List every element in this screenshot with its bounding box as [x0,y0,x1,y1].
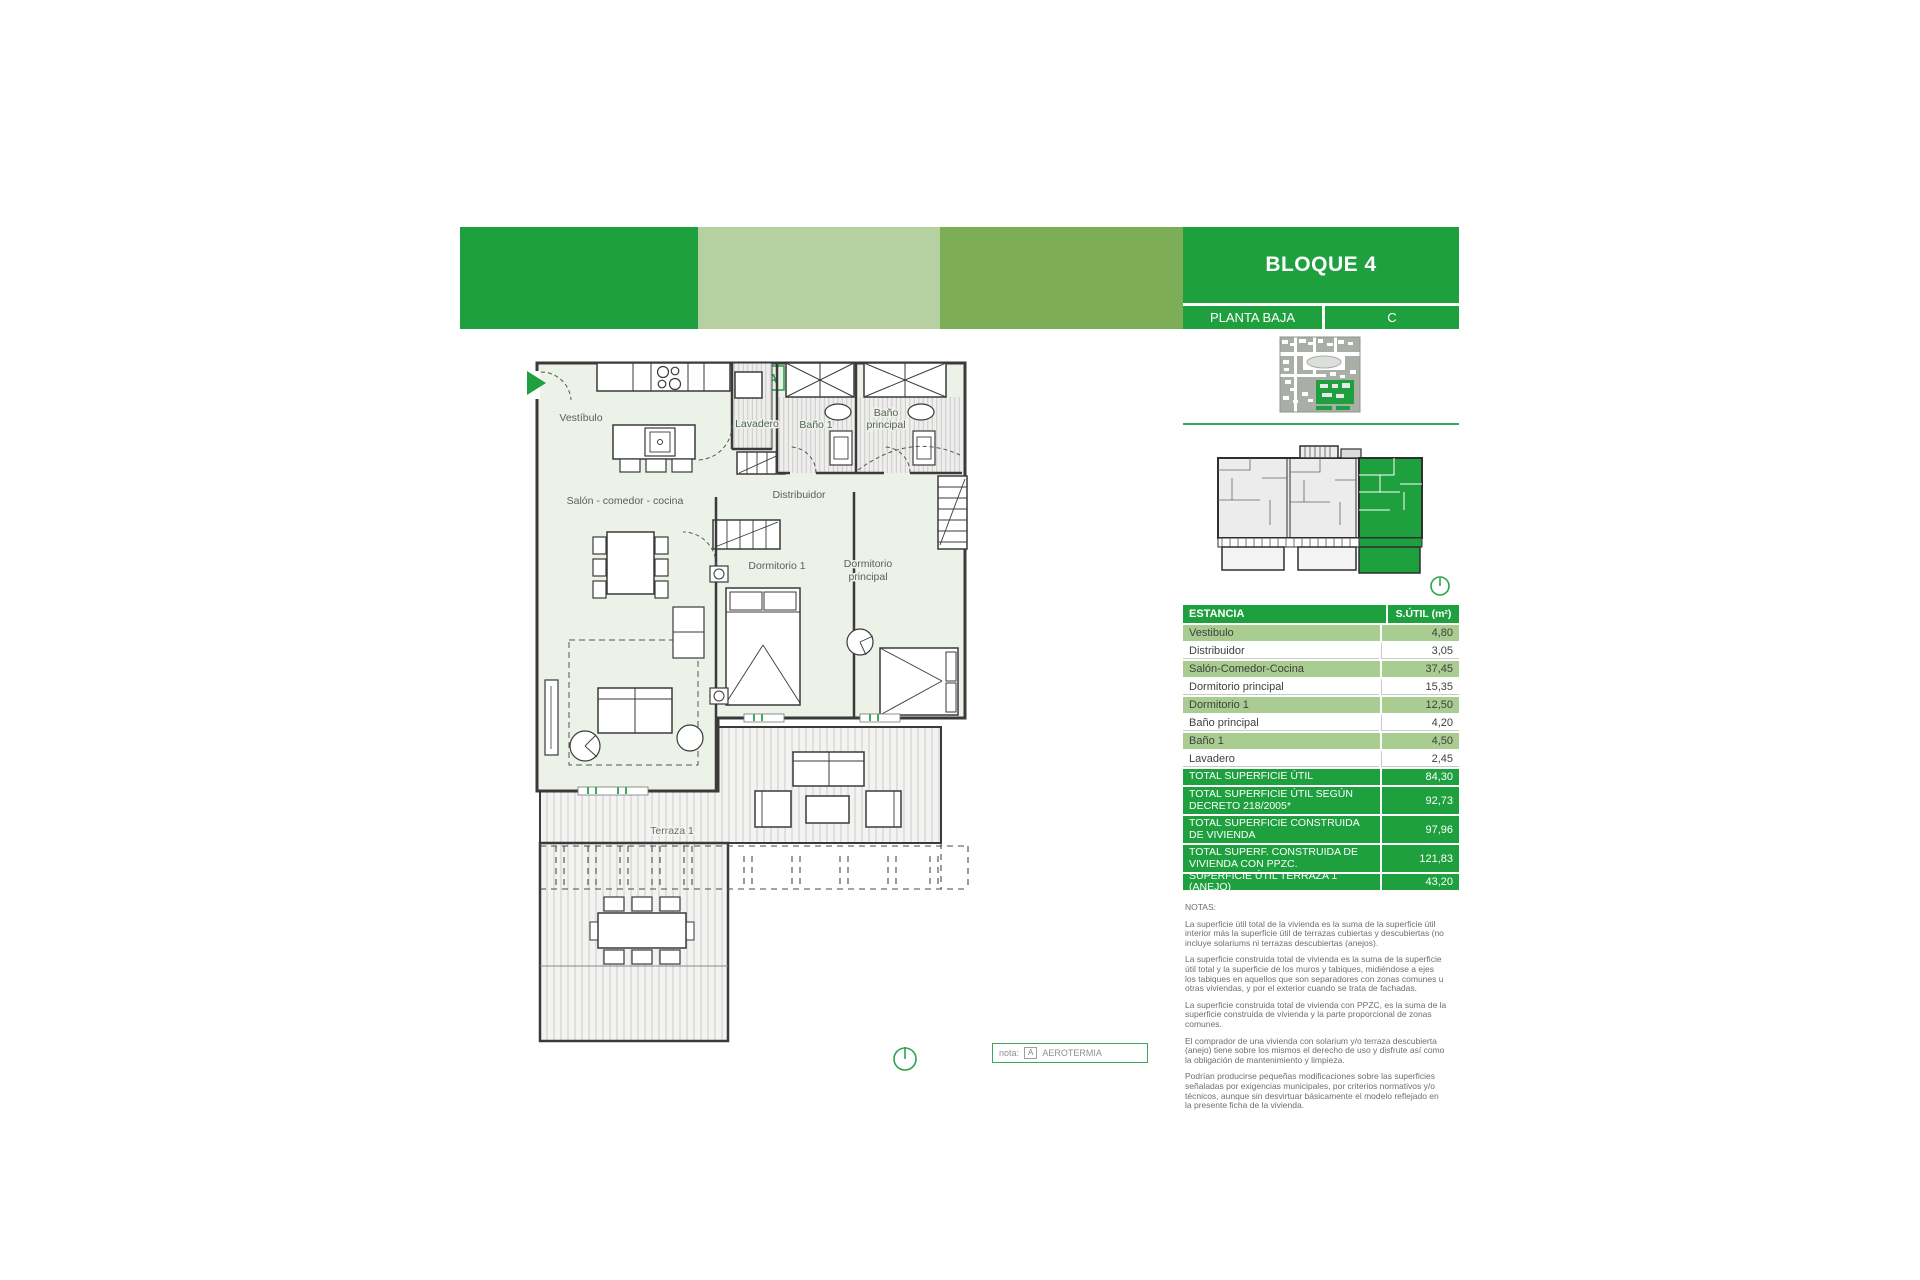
area-value: 4,20 [1381,715,1459,731]
table-total-row: TOTAL SUPERFICIE ÚTIL 84,30 [1183,769,1459,785]
table-total-row: TOTAL SUPERFICIE ÚTIL SEGÚN DECRETO 218/… [1183,787,1459,814]
total-value: 121,83 [1382,845,1459,872]
label-bano-principal: Baño [874,407,899,419]
total-value: 92,73 [1382,787,1459,814]
table-row: Baño 1 4,50 [1183,733,1459,749]
room-name: Dormitorio principal [1183,679,1379,695]
room-name: Baño 1 [1183,733,1380,749]
label-terraza-1: Terraza 1 [650,825,694,837]
aerotermia-badge: A [1024,1047,1037,1059]
header-band-pale [698,227,940,329]
north-compass-icon [894,1047,916,1070]
highlighted-unit [1359,458,1422,538]
building-key-plan [1185,440,1465,600]
label-dormitorio-principal: Dormitorio [844,558,893,570]
area-value: 3,05 [1381,643,1459,659]
notes-block: NOTAS: La superficie útil total de la vi… [1185,903,1447,1118]
room-name: Dormitorio 1 [1183,697,1380,713]
note-paragraph: La superficie construida total de vivien… [1185,1001,1447,1030]
table-total-row: TOTAL SUPERFICIE CONSTRUIDA DE VIVIENDA … [1183,816,1459,843]
area-value: 2,45 [1381,751,1459,767]
table-row: Baño principal 4,20 [1183,715,1459,731]
aerotermia-text: AEROTERMIA [1042,1048,1102,1058]
property-sheet: BLOQUE 4 PLANTA BAJA C [0,0,1920,1280]
table-header-row: ESTANCIA S.ÚTIL (m²) [1183,605,1459,623]
header-band-medium [940,227,1183,329]
col-estancia: ESTANCIA [1183,605,1386,623]
block-title-panel: BLOQUE 4 [1183,227,1459,303]
table-total-row: TOTAL SUPERF. CONSTRUIDA DE VIVIENDA CON… [1183,845,1459,872]
floor-label: PLANTA BAJA [1183,306,1322,329]
table-row: Lavadero 2,45 [1183,751,1459,767]
table-row: Distribuidor 3,05 [1183,643,1459,659]
table-row: Dormitorio 1 12,50 [1183,697,1459,713]
label-dormitorio-principal: principal [848,571,887,583]
floor-unit-row: PLANTA BAJA C [1183,306,1459,329]
panel-divider [1183,423,1459,425]
total-value: 84,30 [1382,769,1459,785]
label-bano-principal: principal [866,419,905,431]
total-label: TOTAL SUPERFICIE ÚTIL [1183,769,1380,785]
bathroom-1 [777,363,856,473]
area-value: 4,80 [1382,625,1459,641]
total-label: SUPERFICIE ÚTIL TERRAZA 1 (ANEJO) [1183,874,1380,890]
label-vestibulo: Vestíbulo [559,412,602,424]
area-value: 4,50 [1382,733,1459,749]
label-distribuidor: Distribuidor [772,489,826,501]
site-map [1276,333,1366,417]
label-dormitorio-1: Dormitorio 1 [748,560,805,572]
block-title: BLOQUE 4 [1265,253,1376,277]
table-row: Vestibulo 4,80 [1183,625,1459,641]
aerotermia-note: nota: A AEROTERMIA [992,1043,1148,1063]
area-value: 37,45 [1382,661,1459,677]
kitchen-counter [597,363,730,391]
header-band-dark [460,227,698,329]
note-paragraph: Podrían producirse pequeñas modificacion… [1185,1072,1447,1110]
total-value: 97,96 [1382,816,1459,843]
dining-table [593,532,668,598]
total-label: TOTAL SUPERFICIE ÚTIL SEGÚN DECRETO 218/… [1183,787,1380,814]
note-paragraph: La superficie construida total de vivien… [1185,955,1447,993]
stairs [938,476,967,549]
total-label: TOTAL SUPERF. CONSTRUIDA DE VIVIENDA CON… [1183,845,1380,872]
total-value: 43,20 [1382,874,1459,890]
closet [713,520,780,549]
clock-icon [1431,577,1449,595]
col-sutil: S.ÚTIL (m²) [1388,605,1459,623]
table-row: Salón-Comedor-Cocina 37,45 [1183,661,1459,677]
area-value: 15,35 [1381,679,1459,695]
area-value: 12,50 [1382,697,1459,713]
nota-label: nota: [999,1048,1019,1058]
floor-plan: A [520,350,985,1080]
room-name: Baño principal [1183,715,1379,731]
laundry-room [732,363,772,449]
label-lavadero: Lavadero [735,418,779,430]
total-label: TOTAL SUPERFICIE CONSTRUIDA DE VIVIENDA [1183,816,1380,843]
note-paragraph: La superficie útil total de la vivienda … [1185,920,1447,949]
room-name: Salón-Comedor-Cocina [1183,661,1380,677]
areas-table: ESTANCIA S.ÚTIL (m²) Vestibulo 4,80 Dist… [1183,605,1459,890]
kitchen-island [613,425,695,472]
notes-heading: NOTAS: [1185,903,1447,913]
unit-letter: C [1325,306,1459,329]
outdoor-dining [590,897,694,964]
note-paragraph: El comprador de una vivienda con solariu… [1185,1037,1447,1066]
label-bano-1: Baño 1 [799,419,832,431]
table-row: Dormitorio principal 15,35 [1183,679,1459,695]
room-name: Distribuidor [1183,643,1379,659]
room-name: Lavadero [1183,751,1379,767]
room-name: Vestibulo [1183,625,1380,641]
label-salon: Salón - comedor - cocina [567,495,684,507]
table-total-row: SUPERFICIE ÚTIL TERRAZA 1 (ANEJO) 43,20 [1183,874,1459,890]
